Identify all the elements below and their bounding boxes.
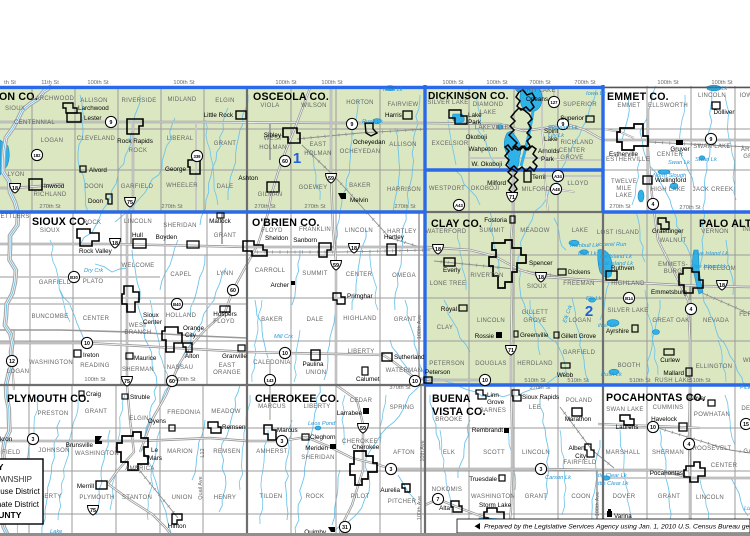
svg-text:Marathon: Marathon — [565, 416, 592, 423]
svg-text:GRANT: GRANT — [525, 494, 548, 500]
svg-text:BUNCOMBE: BUNCOMBE — [31, 314, 68, 320]
svg-text:HENRY: HENRY — [214, 495, 236, 501]
svg-text:House District: House District — [0, 487, 41, 496]
svg-text:10: 10 — [482, 378, 488, 384]
svg-text:LAKE: LAKE — [572, 228, 589, 234]
svg-text:10: 10 — [282, 351, 288, 357]
svg-text:HIGH LAKE: HIGH LAKE — [651, 187, 686, 193]
svg-text:3: 3 — [32, 437, 35, 443]
svg-text:Sanborn: Sanborn — [293, 237, 317, 244]
svg-text:LOGAN: LOGAN — [569, 318, 592, 324]
svg-text:BROOKE: BROOKE — [435, 417, 462, 423]
svg-text:Storm Lake: Storm Lake — [479, 502, 512, 509]
svg-text:510th St: 510th St — [524, 378, 546, 384]
svg-text:Cherokee: Cherokee — [352, 444, 380, 451]
svg-text:ARM: ARM — [741, 147, 750, 153]
svg-text:Plover: Plover — [688, 395, 706, 402]
svg-text:TWELVE: TWELVE — [611, 179, 637, 185]
svg-text:100th St: 100th St — [275, 80, 297, 86]
svg-text:City: City — [575, 453, 587, 460]
svg-text:PLATO: PLATO — [83, 279, 104, 285]
svg-text:Pocahontas: Pocahontas — [650, 470, 683, 477]
svg-text:LEE: LEE — [529, 405, 541, 411]
svg-text:3: 3 — [540, 467, 543, 473]
svg-text:ttle Clear Lk: ttle Clear Lk — [598, 481, 630, 487]
svg-text:CENTER: CENTER — [559, 148, 586, 154]
svg-text:AMHERST: AMHERST — [256, 449, 287, 455]
svg-text:EAST: EAST — [219, 363, 236, 369]
svg-text:GARFIELD: GARFIELD — [563, 350, 596, 356]
svg-text:Lizard: Lizard — [744, 506, 750, 512]
svg-text:North Slough: North Slough — [653, 173, 686, 179]
svg-text:GARFIELD: GARFIELD — [121, 184, 154, 190]
svg-text:Graettinger: Graettinger — [652, 228, 684, 235]
svg-text:SUMMIT: SUMMIT — [302, 271, 327, 277]
svg-text:SCOTT: SCOTT — [483, 450, 505, 456]
svg-text:Milford: Milford — [487, 180, 506, 187]
svg-text:9: 9 — [710, 137, 713, 143]
svg-text:BUENA: BUENA — [432, 393, 471, 405]
svg-text:71: 71 — [509, 195, 515, 201]
svg-text:GA: GA — [743, 449, 750, 455]
svg-text:Pickerel: Pickerel — [740, 385, 750, 391]
svg-text:SUPERIOR: SUPERIOR — [563, 102, 597, 108]
svg-text:GRANT: GRANT — [394, 317, 417, 323]
svg-text:Struble: Struble — [130, 394, 150, 401]
svg-text:READING: READING — [80, 363, 109, 369]
svg-text:18: 18 — [538, 275, 544, 281]
svg-text:WASHINGTON: WASHINGTON — [29, 360, 73, 366]
svg-text:60: 60 — [230, 288, 236, 294]
svg-text:Sheldon: Sheldon — [265, 235, 289, 242]
svg-text:SIOUX: SIOUX — [40, 228, 60, 234]
svg-text:FERN: FERN — [739, 312, 750, 318]
svg-text:WASHINGTON: WASHINGTON — [75, 451, 119, 457]
svg-text:Swan Lk: Swan Lk — [668, 160, 691, 166]
svg-text:PLYMOUTH: PLYMOUTH — [79, 495, 114, 501]
svg-text:POLAND: POLAND — [566, 398, 593, 404]
svg-text:Larrabee: Larrabee — [337, 410, 363, 417]
svg-text:HIGHLAND: HIGHLAND — [611, 281, 645, 287]
svg-text:HIGHLAND: HIGHLAND — [343, 316, 377, 322]
svg-text:Ayrshire: Ayrshire — [606, 328, 629, 335]
svg-text:100th St: 100th St — [711, 80, 733, 86]
svg-text:ELGIN: ELGIN — [129, 416, 149, 422]
svg-text:7: 7 — [437, 497, 440, 503]
svg-text:UNION: UNION — [306, 370, 327, 376]
svg-text:Gruver: Gruver — [670, 146, 689, 153]
svg-text:100th St: 100th St — [657, 80, 679, 86]
svg-text:RICHLAND: RICHLAND — [33, 192, 66, 198]
svg-text:GROVE: GROVE — [560, 155, 583, 161]
svg-text:Sutherland: Sutherland — [394, 354, 425, 361]
svg-text:Matlock: Matlock — [209, 218, 232, 225]
svg-text:ROCK: ROCK — [306, 494, 325, 500]
svg-text:Ireton: Ireton — [83, 352, 100, 359]
svg-text:100th St: 100th St — [174, 377, 196, 383]
svg-text:RIVERTON: RIVERTON — [470, 273, 503, 279]
svg-text:Laurens: Laurens — [616, 424, 639, 431]
svg-text:ALLISON: ALLISON — [80, 98, 107, 104]
svg-text:LAKE: LAKE — [480, 110, 497, 116]
svg-text:60: 60 — [282, 159, 288, 165]
svg-text:Greenville: Greenville — [520, 332, 549, 339]
svg-text:COUNTY: COUNTY — [0, 510, 22, 520]
svg-text:EMMETS-: EMMETS- — [658, 262, 688, 268]
svg-text:WESTPORT: WESTPORT — [429, 186, 465, 192]
svg-text:LYON: LYON — [7, 172, 24, 178]
svg-text:LIBERTY: LIBERTY — [348, 349, 375, 355]
svg-text:Aurelia: Aurelia — [380, 487, 400, 494]
svg-text:BARNES: BARNES — [480, 408, 506, 414]
svg-text:B40: B40 — [173, 302, 181, 307]
svg-text:RICHLAND: RICHLAND — [560, 140, 593, 146]
svg-text:LAKE: LAKE — [616, 193, 633, 199]
svg-text:TILDEN: TILDEN — [259, 494, 282, 500]
svg-text:Archer: Archer — [270, 282, 289, 289]
svg-text:GRANT: GRANT — [85, 409, 108, 415]
svg-text:18: 18 — [112, 241, 118, 247]
svg-text:11th St: 11th St — [41, 80, 59, 86]
svg-text:HOLMAN: HOLMAN — [304, 151, 331, 157]
svg-text:LINCOLN: LINCOLN — [477, 318, 505, 324]
svg-text:100th Ave: 100th Ave — [417, 315, 423, 339]
svg-text:59: 59 — [328, 176, 334, 182]
svg-text:Sioux: Sioux — [143, 312, 160, 319]
svg-text:100th St: 100th St — [84, 377, 106, 383]
svg-text:Trumbull Lk: Trumbull Lk — [569, 243, 599, 249]
svg-text:Le: Le — [151, 447, 159, 454]
svg-text:700th St: 700th St — [574, 80, 596, 86]
svg-text:Rock Rapids: Rock Rapids — [117, 138, 153, 145]
svg-text:WATERMAN: WATERMAN — [386, 368, 423, 374]
svg-text:Craig: Craig — [86, 391, 102, 398]
svg-text:370th St: 370th St — [389, 385, 411, 391]
svg-text:BAKER: BAKER — [349, 183, 371, 189]
svg-text:Remsen: Remsen — [222, 424, 246, 431]
svg-text:9: 9 — [351, 122, 354, 128]
svg-text:CLEVELAND: CLEVELAND — [77, 136, 116, 142]
svg-text:Little Rock: Little Rock — [204, 112, 234, 119]
svg-text:18: 18 — [719, 283, 725, 289]
svg-text:WATERFORD: WATERFORD — [426, 229, 467, 235]
svg-text:Inwood: Inwood — [44, 183, 65, 190]
svg-text:POWHATAN: POWHATAN — [694, 412, 730, 418]
svg-text:270th St: 270th St — [39, 204, 61, 210]
svg-text:Superior: Superior — [560, 115, 584, 122]
svg-text:Melvin: Melvin — [350, 197, 369, 204]
svg-text:Terril: Terril — [532, 174, 546, 181]
svg-text:BRANCH: BRANCH — [124, 330, 151, 336]
svg-text:370th St: 370th St — [529, 385, 551, 391]
svg-text:59: 59 — [333, 263, 339, 269]
svg-text:OCHEYEDAN: OCHEYEDAN — [340, 149, 381, 155]
svg-text:182: 182 — [34, 153, 42, 158]
svg-text:W. Okoboji: W. Okoboji — [472, 161, 502, 168]
svg-text:270th St: 270th St — [304, 204, 326, 210]
svg-text:Alton: Alton — [185, 353, 200, 360]
svg-text:Spencer: Spencer — [529, 260, 552, 267]
svg-text:Marcus: Marcus — [277, 427, 298, 434]
svg-text:Merrill: Merrill — [77, 483, 94, 490]
svg-text:CLAY: CLAY — [437, 325, 453, 331]
svg-text:12: 12 — [9, 359, 15, 365]
svg-text:Sibley: Sibley — [264, 132, 282, 139]
svg-text:WE: WE — [743, 358, 750, 364]
svg-text:Havelock: Havelock — [651, 416, 678, 423]
svg-text:Hospers: Hospers — [213, 311, 236, 318]
svg-text:kron: kron — [0, 436, 13, 443]
svg-text:AFTON: AFTON — [393, 450, 415, 456]
svg-text:Emmetsburg: Emmetsburg — [651, 289, 687, 296]
svg-text:GOEWEY: GOEWEY — [299, 185, 328, 191]
svg-text:Swan Lk: Swan Lk — [695, 157, 718, 163]
svg-text:ORANGE: ORANGE — [213, 370, 241, 376]
svg-text:Senate District: Senate District — [0, 500, 40, 509]
svg-text:PITCHER: PITCHER — [388, 499, 417, 505]
svg-text:270th St: 270th St — [161, 204, 183, 210]
svg-text:31: 31 — [342, 525, 348, 531]
svg-text:ALLISON: ALLISON — [389, 142, 416, 148]
svg-text:Wahpeton: Wahpeton — [469, 146, 498, 153]
svg-text:CEDAR: CEDAR — [350, 398, 373, 404]
svg-text:Royal: Royal — [441, 306, 457, 313]
svg-text:WILSON: WILSON — [301, 103, 326, 109]
svg-text:Five Island Lk: Five Island Lk — [691, 264, 727, 270]
svg-text:4: 4 — [688, 442, 691, 448]
svg-text:ELGIN: ELGIN — [215, 98, 235, 104]
svg-text:STANTON: STANTON — [122, 495, 152, 501]
svg-text:GREAT OAK: GREAT OAK — [652, 318, 689, 324]
svg-text:EAST: EAST — [310, 142, 327, 148]
svg-text:9: 9 — [110, 120, 113, 126]
svg-text:143: 143 — [267, 378, 275, 383]
svg-text:510th St: 510th St — [567, 378, 589, 384]
svg-text:18: 18 — [12, 186, 18, 192]
svg-text:Albert: Albert — [569, 445, 586, 452]
svg-text:Leos Pond: Leos Pond — [308, 421, 336, 427]
svg-text:Calumet: Calumet — [356, 376, 380, 383]
svg-text:PLYMOUTH CO.: PLYMOUTH CO. — [7, 393, 90, 405]
svg-text:SHERMAN: SHERMAN — [652, 450, 684, 456]
svg-text:Arnolds: Arnolds — [538, 148, 559, 155]
svg-text:George: George — [165, 166, 187, 173]
svg-text:75: 75 — [127, 200, 133, 206]
svg-text:HARRISON: HARRISON — [387, 187, 421, 193]
svg-text:SILVER LAKE: SILVER LAKE — [427, 100, 468, 106]
svg-text:GILLETT: GILLETT — [522, 310, 548, 316]
svg-text:MARCUS: MARCUS — [258, 404, 286, 410]
svg-text:SHERIDAN: SHERIDAN — [301, 455, 334, 461]
svg-text:FAIRFIELD: FAIRFIELD — [563, 460, 596, 466]
svg-text:SIOUX: SIOUX — [527, 284, 547, 290]
svg-text:Ashton: Ashton — [238, 175, 258, 182]
svg-text:VIOLA: VIOLA — [260, 103, 279, 109]
svg-text:Iowa Lk: Iowa Lk — [383, 87, 404, 93]
svg-text:Gillett Grove: Gillett Grove — [561, 333, 596, 340]
svg-text:18: 18 — [435, 247, 441, 253]
svg-text:FIELD: FIELD — [2, 450, 21, 456]
svg-text:LOGAN: LOGAN — [7, 369, 30, 375]
svg-text:Peterson: Peterson — [425, 369, 451, 376]
svg-text:A43: A43 — [455, 203, 463, 208]
svg-text:100th Ave: 100th Ave — [417, 496, 423, 520]
svg-text:Rembrandt: Rembrandt — [472, 427, 503, 434]
svg-text:Mars: Mars — [148, 455, 162, 462]
svg-text:LINCOLN: LINCOLN — [345, 228, 373, 234]
svg-text:GR: GR — [743, 154, 750, 160]
svg-text:Hull: Hull — [132, 232, 143, 239]
svg-text:270th St: 270th St — [394, 204, 416, 210]
svg-text:OMEGA: OMEGA — [392, 273, 416, 279]
svg-text:TOWNSHIP: TOWNSHIP — [0, 475, 32, 484]
svg-text:Dolliver: Dolliver — [714, 109, 735, 116]
svg-text:15: 15 — [743, 422, 749, 428]
svg-text:FLOYD: FLOYD — [213, 319, 235, 325]
svg-text:Truesdale: Truesdale — [469, 476, 497, 483]
svg-text:MIDLAND: MIDLAND — [167, 97, 196, 103]
svg-text:WASHINGTON: WASHINGTON — [471, 494, 515, 500]
svg-text:ROCK: ROCK — [83, 220, 102, 226]
svg-text:Hinton: Hinton — [168, 523, 187, 530]
svg-text:3: 3 — [390, 467, 393, 473]
svg-text:MARSHALL: MARSHALL — [606, 450, 641, 456]
svg-text:LONE TREE: LONE TREE — [430, 281, 467, 287]
svg-text:59: 59 — [360, 426, 366, 432]
svg-text:REMSEN: REMSEN — [213, 449, 240, 455]
svg-text:COON: COON — [571, 494, 590, 500]
svg-text:FAIRVIEW: FAIRVIEW — [388, 102, 419, 108]
svg-text:ELLSWORTH: ELLSWORTH — [648, 103, 688, 109]
svg-text:100th St: 100th St — [442, 80, 464, 86]
svg-text:Orange: Orange — [183, 325, 205, 332]
svg-text:10: 10 — [412, 379, 418, 385]
svg-text:Tuttle Lk: Tuttle Lk — [706, 86, 729, 92]
svg-text:LINCOLN: LINCOLN — [124, 219, 152, 225]
svg-text:Boyden: Boyden — [156, 234, 178, 241]
svg-text:Alta: Alta — [439, 505, 450, 512]
svg-text:PILOT: PILOT — [351, 494, 370, 500]
svg-text:A48: A48 — [552, 187, 560, 192]
svg-text:Ocheyedan: Ocheyedan — [353, 139, 386, 146]
svg-text:WALNUT: WALNUT — [660, 238, 687, 244]
svg-text:4: 4 — [690, 307, 693, 313]
svg-text:Rock Valley: Rock Valley — [79, 248, 113, 255]
svg-text:700th St: 700th St — [529, 80, 551, 86]
svg-text:SHERIDAN: SHERIDAN — [163, 223, 196, 229]
svg-text:CAPEL: CAPEL — [170, 272, 192, 278]
svg-text:BURG: BURG — [664, 269, 683, 275]
svg-text:SHERMAN: SHERMAN — [122, 367, 154, 373]
svg-text:Lake: Lake — [468, 112, 482, 119]
svg-text:Okoboji: Okoboji — [466, 134, 487, 141]
svg-text:DIAMOND: DIAMOND — [473, 102, 504, 108]
svg-text:ELK: ELK — [443, 450, 455, 456]
svg-text:Orleans: Orleans — [526, 96, 548, 103]
svg-text:RIVERSIDE: RIVERSIDE — [121, 98, 156, 104]
svg-text:UNION: UNION — [172, 495, 193, 501]
svg-text:FLOYD: FLOYD — [261, 228, 283, 234]
svg-text:NEVADA: NEVADA — [703, 318, 729, 324]
svg-text:EMMET CO.: EMMET CO. — [607, 91, 669, 103]
svg-text:DALE: DALE — [217, 184, 234, 190]
svg-text:MEADOW: MEADOW — [211, 409, 241, 415]
svg-text:Mallard: Mallard — [663, 370, 684, 377]
svg-text:Mill Crk: Mill Crk — [274, 334, 294, 340]
svg-text:L12: L12 — [200, 448, 206, 457]
svg-text:100th St: 100th St — [173, 80, 195, 86]
svg-text:ilver Lk: ilver Lk — [598, 323, 617, 329]
svg-text:4: 4 — [652, 202, 655, 208]
svg-text:GRANT: GRANT — [658, 494, 681, 500]
svg-text:LLOYD: LLOYD — [567, 181, 589, 187]
svg-text:Park: Park — [468, 119, 482, 126]
svg-text:Everly: Everly — [443, 267, 461, 274]
svg-text:Prepared by the Legislative Se: Prepared by the Legislative Services Age… — [484, 524, 750, 531]
svg-text:tle Clear Lk: tle Clear Lk — [598, 473, 628, 479]
svg-text:Granville: Granville — [222, 353, 247, 360]
svg-text:OSCEOLA CO.: OSCEOLA CO. — [253, 91, 329, 103]
svg-text:Pleasant Lk: Pleasant Lk — [548, 125, 579, 131]
svg-text:510th St: 510th St — [689, 378, 711, 384]
svg-text:FREDONIA: FREDONIA — [167, 410, 200, 416]
svg-text:Grove: Grove — [487, 399, 505, 406]
svg-text:PETERSON: PETERSON — [429, 361, 464, 367]
svg-text:JACK CREEK: JACK CREEK — [693, 187, 734, 193]
svg-text:LINCOLN: LINCOLN — [696, 495, 724, 501]
svg-text:75: 75 — [124, 379, 130, 385]
svg-text:CITY: CITY — [0, 462, 4, 472]
svg-text:RUSH LAKE: RUSH LAKE — [655, 378, 692, 384]
svg-text:Cleghorn: Cleghorn — [310, 434, 336, 441]
svg-text:DOON: DOON — [84, 184, 103, 190]
svg-text:EMMET: EMMET — [617, 103, 640, 109]
svg-text:Iowa Lk: Iowa Lk — [586, 91, 607, 97]
svg-text:18: 18 — [351, 246, 357, 252]
svg-text:CENTER: CENTER — [346, 272, 373, 278]
svg-text:Lost Island Lk: Lost Island Lk — [598, 261, 634, 267]
svg-text:CUMMINS: CUMMINS — [653, 405, 684, 411]
svg-text:HORTON: HORTON — [346, 100, 374, 106]
svg-text:SILVER LAKE: SILVER LAKE — [607, 308, 648, 314]
svg-text:City: City — [185, 332, 197, 339]
svg-text:CENTER: CENTER — [83, 316, 110, 322]
svg-text:339: 339 — [194, 154, 202, 159]
svg-text:127: 127 — [551, 100, 559, 105]
svg-text:WELCOME: WELCOME — [121, 263, 154, 269]
svg-text:Larchwood: Larchwood — [78, 105, 109, 112]
svg-text:Curlew: Curlew — [660, 357, 680, 364]
svg-text:Lily Lk: Lily Lk — [548, 133, 565, 139]
svg-text:CENTER: CENTER — [711, 463, 738, 469]
svg-text:SPRING: SPRING — [390, 405, 415, 411]
svg-text:LIBERAL: LIBERAL — [167, 136, 194, 142]
svg-text:Five Island Lk: Five Island Lk — [693, 251, 729, 257]
svg-text:Doon: Doon — [88, 198, 104, 205]
svg-text:270th St: 270th St — [679, 205, 701, 211]
svg-text:SWAN LAKE: SWAN LAKE — [693, 144, 731, 150]
svg-text:B14: B14 — [625, 296, 633, 301]
svg-text:DES: DES — [741, 406, 750, 412]
svg-text:AMERICA: AMERICA — [125, 466, 154, 472]
svg-text:SETTLERS: SETTLERS — [0, 214, 30, 220]
svg-text:GRANT: GRANT — [214, 233, 237, 239]
svg-text:Rush Lk: Rush Lk — [601, 372, 623, 378]
svg-text:LINCOLN: LINCOLN — [522, 450, 550, 456]
svg-text:Meriden: Meriden — [305, 445, 328, 452]
svg-text:LINCOLN: LINCOLN — [698, 93, 726, 99]
svg-text:NOKOMIS: NOKOMIS — [432, 487, 462, 493]
